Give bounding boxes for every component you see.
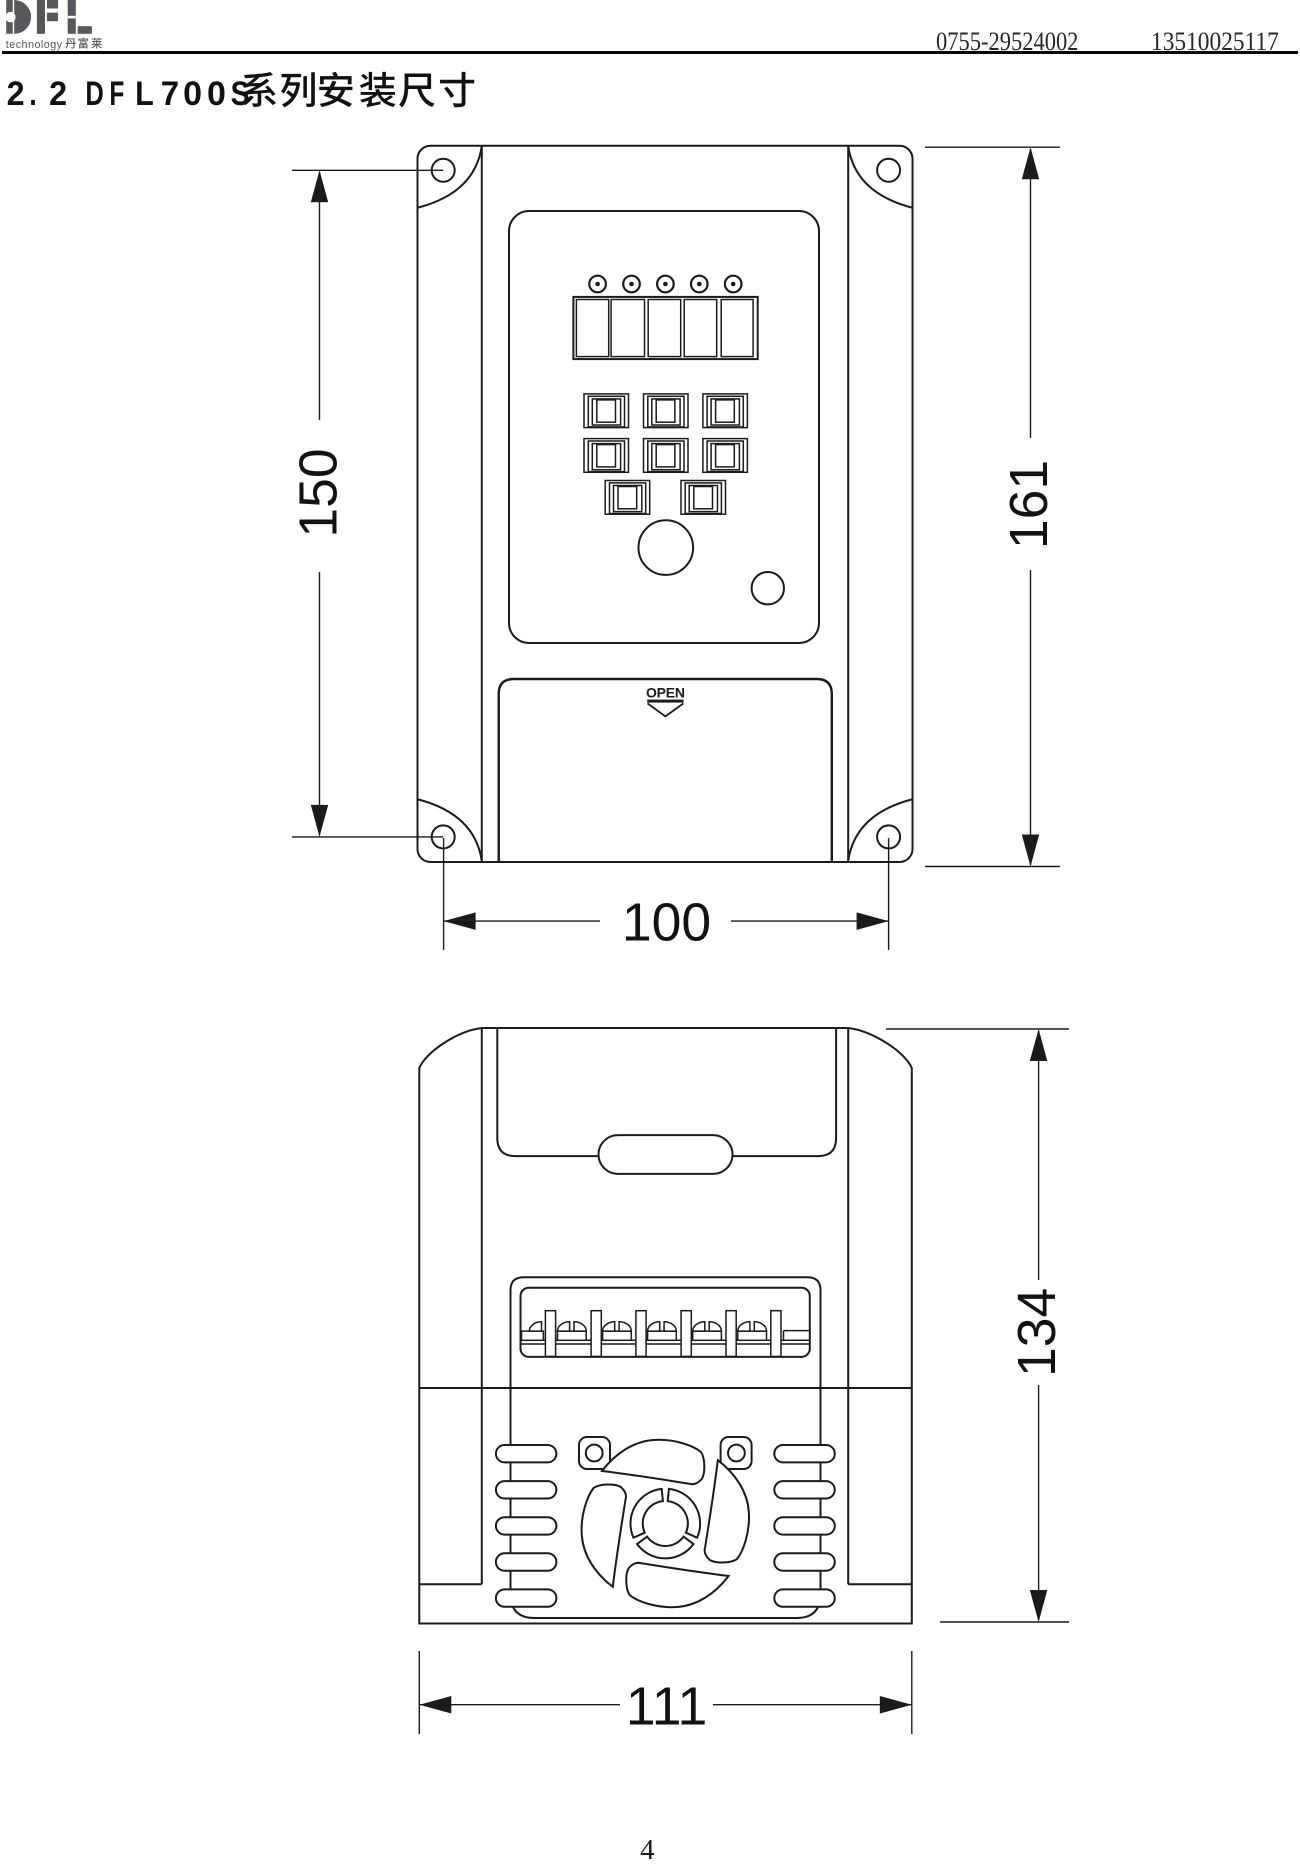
svg-text:OPEN: OPEN — [646, 685, 685, 701]
svg-text:100: 100 — [622, 893, 711, 952]
svg-text:111: 111 — [626, 1677, 707, 1736]
svg-text:150: 150 — [289, 448, 348, 537]
svg-text:161: 161 — [1000, 460, 1059, 549]
svg-text:134: 134 — [1008, 1288, 1067, 1377]
